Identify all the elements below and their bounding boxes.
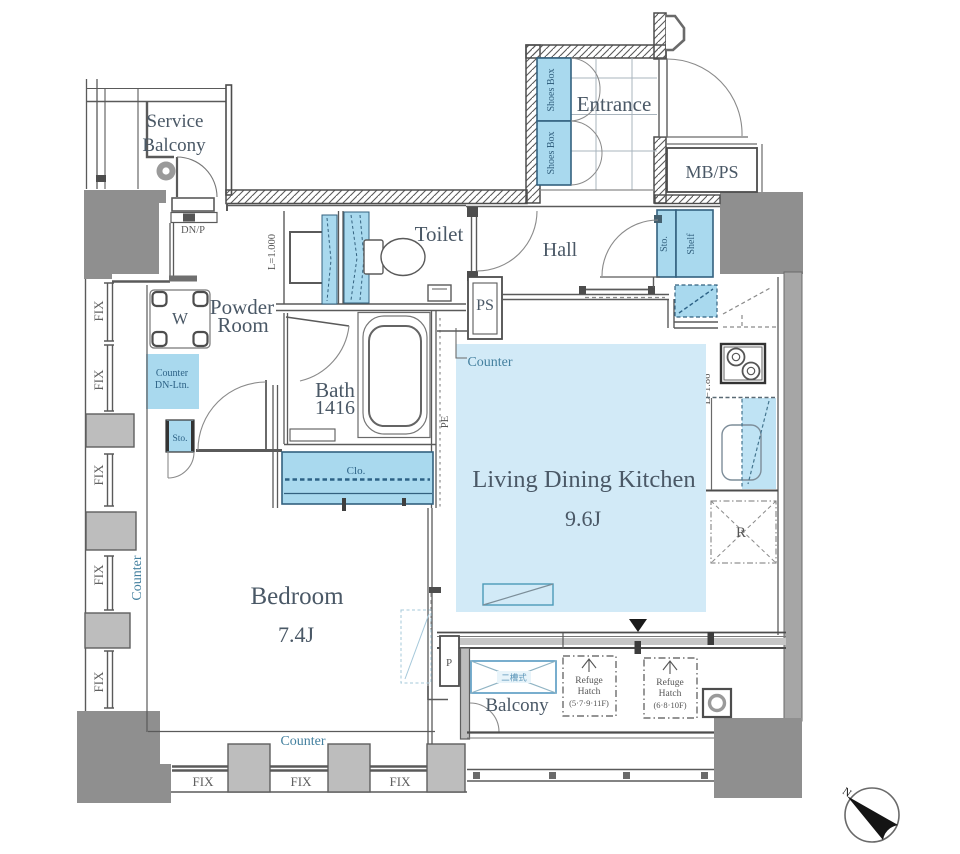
svg-text:9.6J: 9.6J: [565, 506, 602, 531]
svg-text:Entrance: Entrance: [577, 92, 652, 116]
svg-text:Counter: Counter: [280, 734, 325, 749]
svg-text:FIX: FIX: [390, 774, 412, 789]
svg-text:7.4J: 7.4J: [278, 622, 315, 647]
svg-text:Shoes Box: Shoes Box: [546, 68, 557, 111]
svg-text:Counter: Counter: [156, 368, 189, 379]
svg-text:Clo.: Clo.: [347, 465, 366, 477]
svg-text:Counter: Counter: [130, 555, 145, 600]
svg-text:Balcony: Balcony: [485, 695, 549, 716]
svg-text:Bedroom: Bedroom: [250, 583, 344, 610]
svg-text:Hatch: Hatch: [659, 689, 682, 699]
svg-text:MB/PS: MB/PS: [685, 162, 738, 182]
svg-text:(6·8·10F): (6·8·10F): [653, 700, 686, 710]
svg-text:Toilet: Toilet: [415, 222, 464, 246]
svg-text:DN-Ltn.: DN-Ltn.: [155, 380, 189, 391]
svg-text:L=1.000: L=1.000: [267, 234, 278, 270]
svg-text:二槽式: 二槽式: [501, 673, 527, 683]
svg-text:Sto.: Sto.: [659, 236, 670, 252]
svg-text:FIX: FIX: [91, 671, 106, 693]
svg-text:PS: PS: [476, 297, 494, 314]
svg-text:DN/P: DN/P: [181, 225, 205, 236]
svg-text:Refuge: Refuge: [575, 675, 602, 686]
svg-text:Room: Room: [217, 313, 268, 337]
svg-text:W: W: [172, 309, 189, 328]
svg-text:(5·7·9·11F): (5·7·9·11F): [569, 698, 609, 708]
svg-text:Shoes Box: Shoes Box: [546, 131, 557, 174]
svg-text:FIX: FIX: [91, 464, 106, 486]
svg-text:PE: PE: [440, 416, 451, 428]
svg-text:Balcony: Balcony: [142, 135, 206, 156]
svg-text:Refuge: Refuge: [656, 677, 683, 688]
svg-text:Hall: Hall: [543, 239, 578, 261]
svg-text:FIX: FIX: [91, 369, 106, 391]
svg-text:FIX: FIX: [91, 564, 106, 586]
svg-text:FIX: FIX: [193, 774, 215, 789]
svg-text:1416: 1416: [315, 397, 355, 419]
svg-text:Hatch: Hatch: [578, 687, 601, 697]
svg-text:Living Dining Kitchen: Living Dining Kitchen: [472, 466, 695, 493]
svg-text:Sto.: Sto.: [172, 434, 187, 444]
svg-text:FIX: FIX: [291, 774, 313, 789]
svg-text:Counter: Counter: [467, 355, 512, 370]
svg-text:FIX: FIX: [91, 300, 106, 322]
svg-text:Shelf: Shelf: [686, 233, 697, 255]
svg-text:Service: Service: [147, 111, 204, 132]
svg-text:R: R: [736, 525, 746, 541]
svg-text:P: P: [446, 657, 452, 669]
